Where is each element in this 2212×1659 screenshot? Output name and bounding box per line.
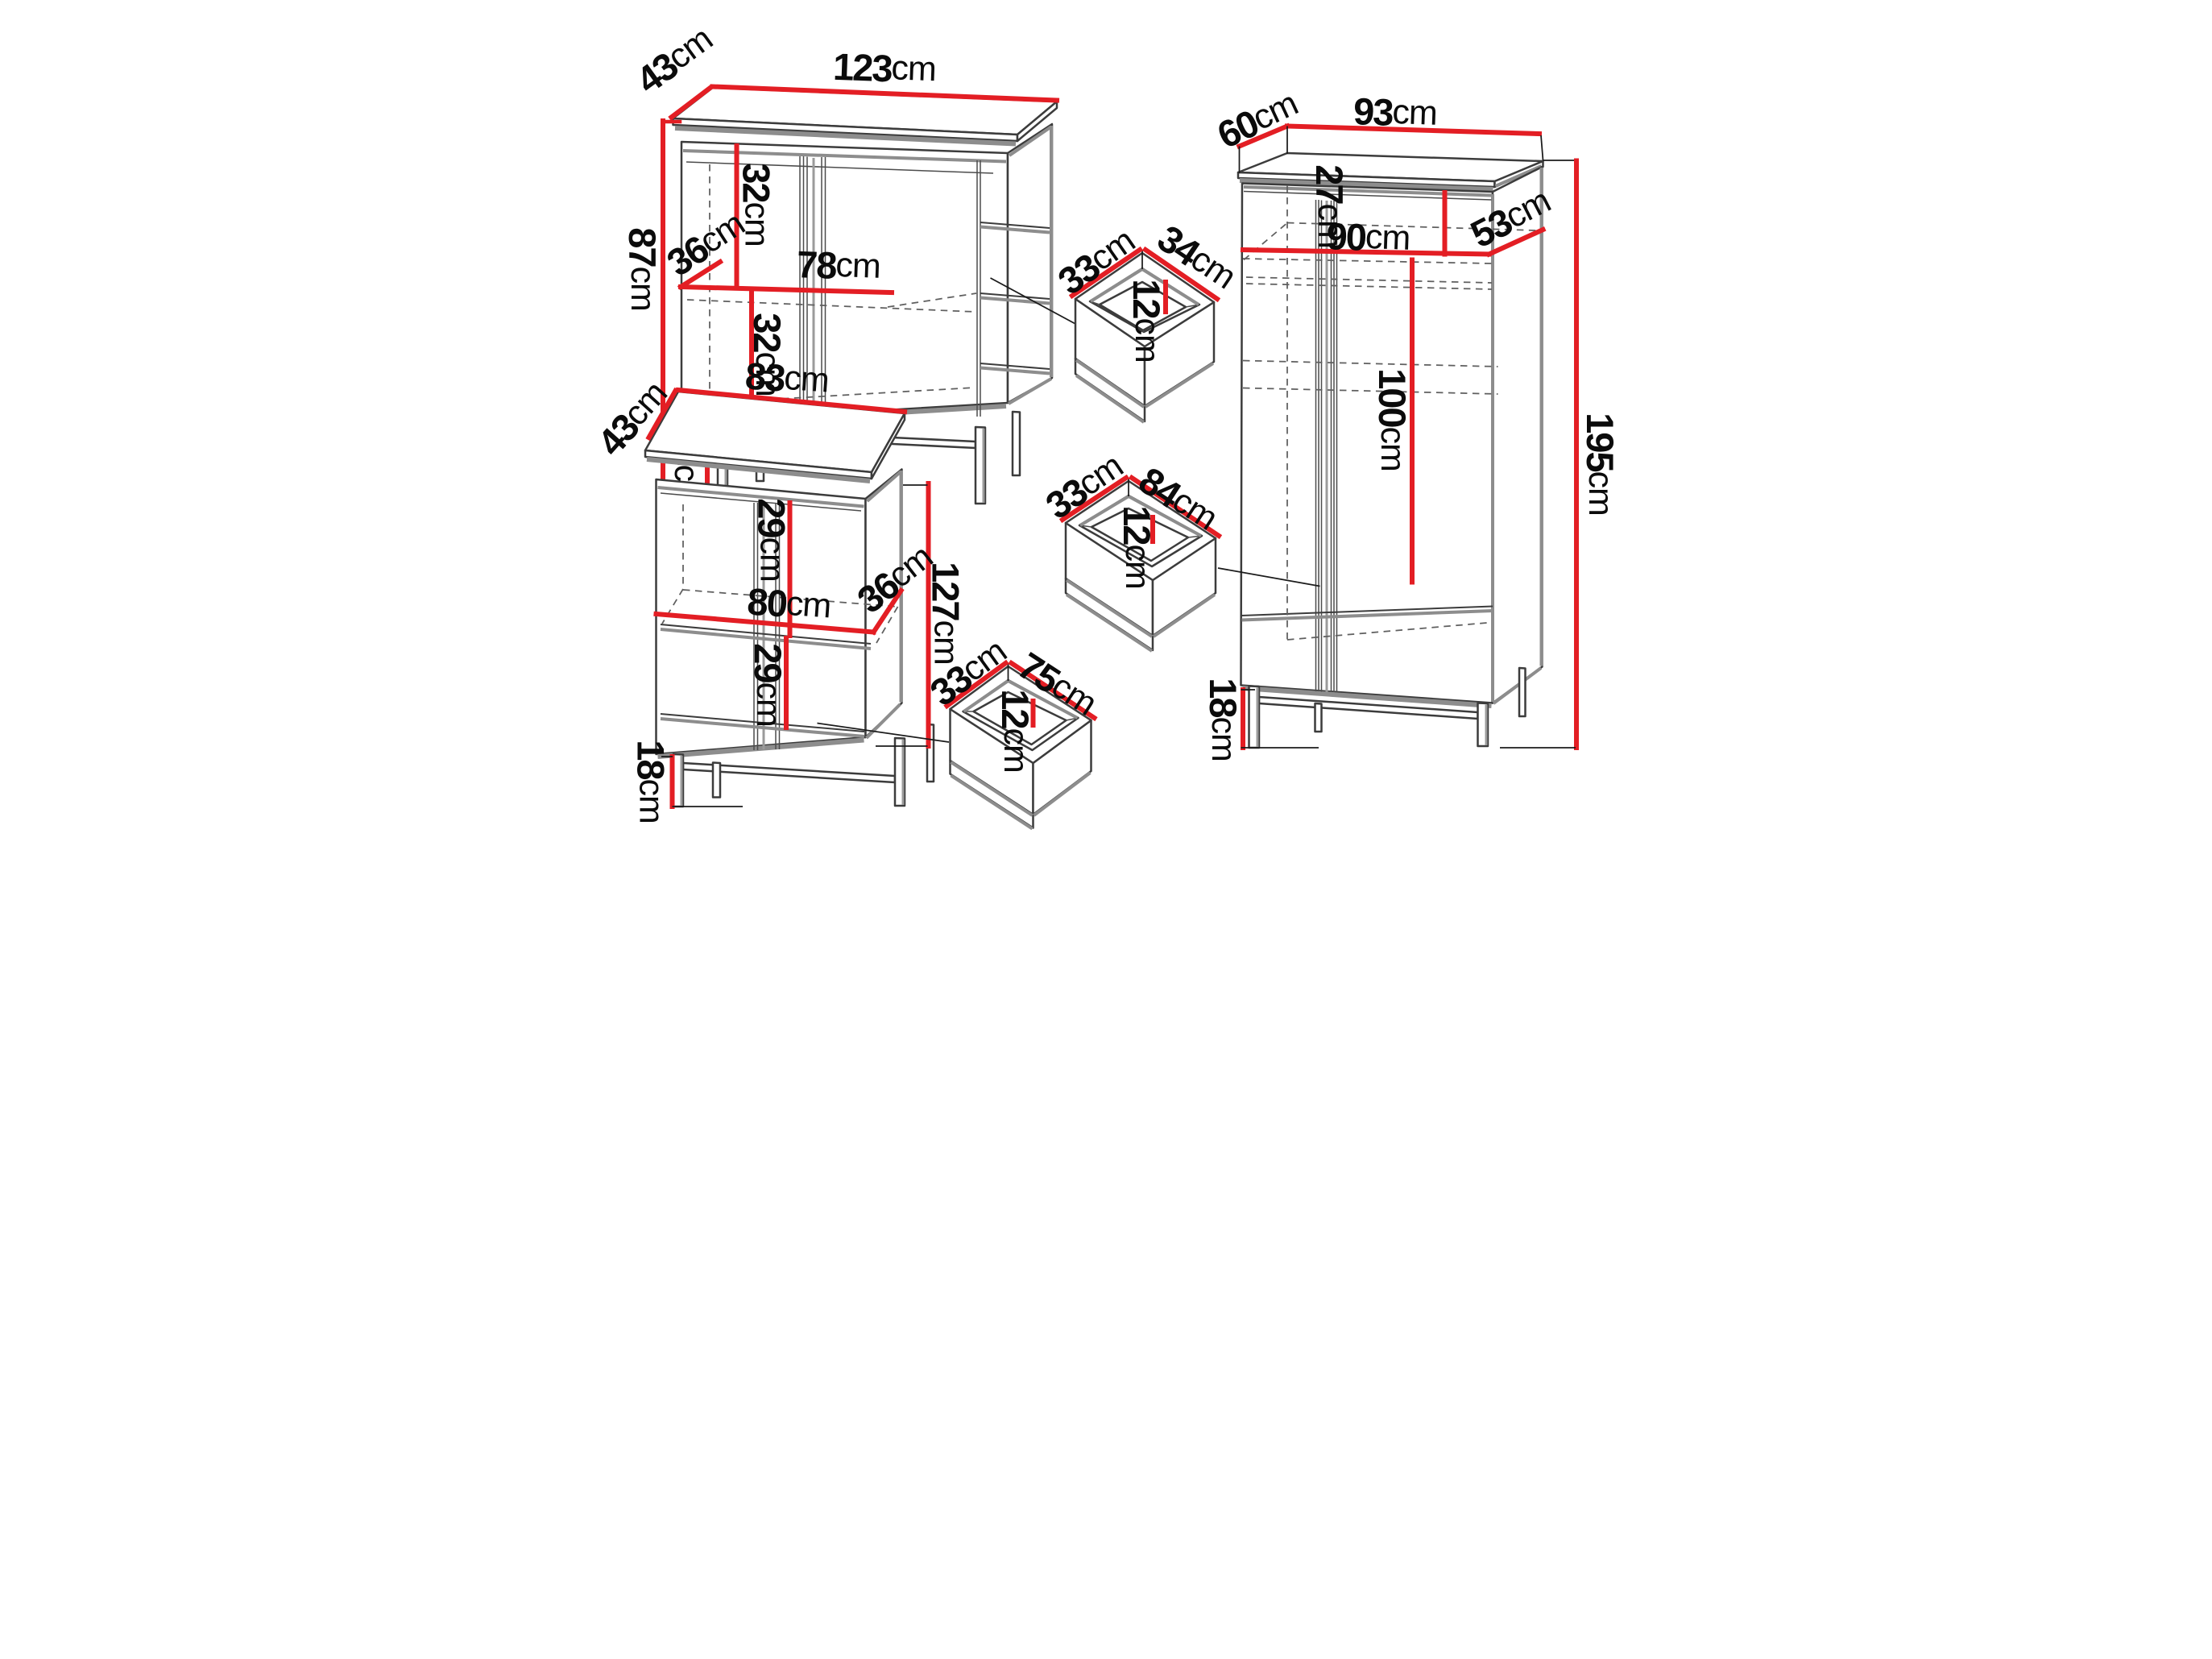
highboard-leg-label: 18cm — [630, 740, 673, 823]
drawer-medium-height-label: 12cm — [994, 689, 1037, 773]
drawer-small: 33cm 34cm 12cm — [1050, 216, 1243, 422]
sideboard-width-label: 123cm — [832, 44, 937, 90]
wardrobe: 60cm 93cm 27cm 90cm 53cm 100cm 195cm 18c… — [1202, 82, 1622, 761]
leg — [713, 763, 720, 798]
highboard: 83cm 43cm 127cm 29cm 80cm 36cm 29cm 18cm — [588, 354, 967, 823]
drawer-small-height-label: 12cm — [1125, 279, 1168, 363]
sideboard-shelf-width-label: 78cm — [796, 243, 880, 288]
highboard-lower-label: 29cm — [747, 643, 789, 727]
wardrobe-width-label: 93cm — [1352, 89, 1437, 135]
sideboard-side-face — [1008, 124, 1052, 403]
highboard-height-label: 127cm — [925, 562, 967, 665]
wardrobe-shelf-width-label: 90cm — [1325, 214, 1410, 260]
furniture-dimensions-diagram: 123cm 43cm 87cm 32cm 78cm 36cm 32cm 18cm — [553, 0, 1659, 830]
drawer-medium: 33cm 75cm 12cm — [922, 630, 1104, 828]
wardrobe-hanging-label: 100cm — [1371, 368, 1414, 471]
highboard-upper-label: 29cm — [751, 498, 793, 582]
leg — [1013, 412, 1020, 475]
sideboard-height-label: 87cm — [621, 227, 664, 311]
drawer-wide-height-label: 12cm — [1116, 505, 1158, 589]
diagram-stage: 123cm 43cm 87cm 32cm 78cm 36cm 32cm 18cm — [553, 0, 1659, 830]
leg — [1315, 703, 1321, 732]
wardrobe-height-label: 195cm — [1579, 413, 1622, 516]
highboard-shelf-width-label: 80cm — [745, 579, 831, 628]
highboard-width-label: 83cm — [744, 354, 830, 402]
wardrobe-leg-label: 18cm — [1202, 678, 1245, 761]
leg — [1519, 668, 1526, 716]
wardrobe-depth-label: 60cm — [1210, 82, 1303, 156]
